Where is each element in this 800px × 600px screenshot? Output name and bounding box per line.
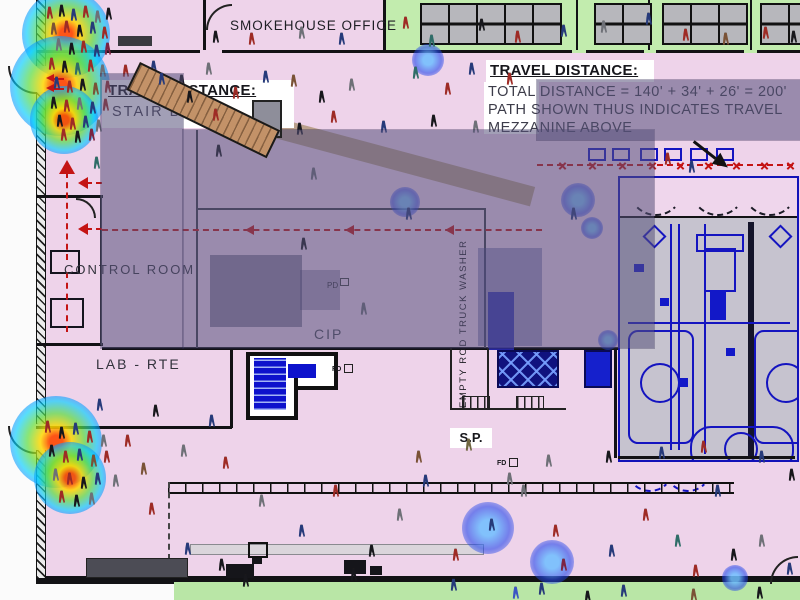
valve bbox=[678, 378, 688, 387]
red-x bbox=[786, 161, 795, 170]
equipment-box bbox=[50, 298, 84, 328]
person bbox=[758, 532, 765, 547]
table-desk bbox=[622, 3, 652, 45]
sprinkler-box bbox=[640, 148, 658, 161]
door-gap bbox=[200, 50, 222, 53]
pd-box bbox=[340, 278, 349, 286]
fd-label: FD bbox=[332, 366, 341, 373]
person bbox=[290, 72, 297, 87]
left-margin bbox=[0, 0, 36, 600]
pipe bbox=[678, 224, 680, 450]
person bbox=[50, 94, 57, 109]
arrow-head bbox=[712, 153, 732, 173]
pd-label: PD bbox=[327, 281, 338, 290]
stair-layer bbox=[0, 0, 800, 600]
vessel-circle bbox=[640, 363, 680, 403]
horizontal-vessel bbox=[690, 426, 794, 462]
control-room-label: CONTROL ROOM bbox=[64, 262, 195, 277]
person bbox=[512, 584, 519, 599]
person bbox=[605, 448, 612, 463]
t-room-equipment-arm bbox=[288, 364, 316, 378]
floor-equipment bbox=[226, 564, 254, 578]
person bbox=[89, 99, 96, 114]
travel-note-right-title: TRAVEL DISTANCE: bbox=[490, 62, 638, 79]
red-x bbox=[618, 161, 627, 170]
door-swing-arc bbox=[628, 160, 684, 216]
person bbox=[82, 113, 89, 128]
travel-note-right-titlebox bbox=[486, 60, 654, 82]
person bbox=[450, 576, 457, 591]
egress-dash bbox=[86, 228, 102, 230]
person bbox=[298, 522, 305, 537]
person bbox=[76, 22, 83, 37]
egress-arrow-left bbox=[340, 225, 354, 235]
exit-door-arc-top bbox=[8, 66, 36, 94]
conveyor-line-2 bbox=[190, 544, 484, 555]
machinery-room bbox=[618, 176, 799, 462]
person bbox=[348, 76, 355, 91]
person bbox=[70, 6, 77, 21]
person bbox=[105, 5, 112, 20]
table-desk bbox=[448, 3, 478, 45]
exit-door-arc-bottom bbox=[8, 426, 36, 454]
person bbox=[112, 472, 119, 487]
person bbox=[570, 205, 577, 220]
egress-arrow-left bbox=[72, 177, 88, 189]
blob-rainbow bbox=[22, 0, 110, 78]
person bbox=[53, 74, 60, 89]
table-desk bbox=[420, 3, 450, 45]
person bbox=[330, 108, 337, 123]
person bbox=[205, 60, 212, 75]
sprinkler-box bbox=[664, 148, 682, 161]
person bbox=[93, 154, 100, 169]
person bbox=[63, 18, 70, 33]
person bbox=[140, 460, 147, 475]
egress-path-vertical bbox=[66, 172, 68, 260]
machinery-floor bbox=[620, 216, 797, 460]
person bbox=[80, 38, 87, 53]
dim-overlay-layer bbox=[0, 0, 800, 600]
person bbox=[552, 522, 559, 537]
person bbox=[152, 402, 159, 417]
person bbox=[76, 95, 83, 110]
sprinkler-box bbox=[612, 148, 630, 161]
table-desk bbox=[760, 3, 790, 45]
valve bbox=[726, 348, 735, 356]
person bbox=[66, 78, 73, 93]
ladder-symbol bbox=[462, 396, 490, 410]
t-room-top bbox=[246, 352, 338, 390]
pipe bbox=[670, 224, 672, 450]
valve-block bbox=[704, 248, 736, 292]
person bbox=[488, 516, 495, 531]
person bbox=[478, 16, 485, 31]
person bbox=[730, 546, 737, 561]
fd-box bbox=[344, 364, 353, 373]
person bbox=[258, 492, 265, 507]
person bbox=[560, 22, 567, 37]
machinery-vestibule bbox=[620, 178, 797, 216]
wall bbox=[450, 408, 566, 410]
vessel bbox=[754, 330, 799, 444]
floor-equipment bbox=[252, 556, 262, 564]
person bbox=[444, 80, 451, 95]
wall bbox=[230, 348, 233, 428]
person bbox=[560, 556, 567, 571]
egress-arrow-left bbox=[42, 84, 54, 92]
person bbox=[74, 128, 81, 143]
person bbox=[44, 418, 51, 433]
table-desk bbox=[662, 3, 692, 45]
door-arc bbox=[76, 198, 96, 218]
wall bbox=[36, 426, 232, 429]
valve-block bbox=[710, 290, 726, 320]
person bbox=[76, 446, 83, 461]
person bbox=[82, 3, 89, 18]
person bbox=[762, 24, 769, 39]
person bbox=[48, 442, 55, 457]
egress-arrow-left bbox=[72, 223, 88, 235]
egress-path-right bbox=[537, 164, 793, 166]
person bbox=[402, 14, 409, 29]
person bbox=[600, 18, 607, 33]
floor-plan-slide: TRAVEL DISTANCE: STAIR B EXIT TRAVEL DIS… bbox=[0, 0, 800, 600]
person bbox=[788, 466, 795, 481]
person bbox=[92, 80, 99, 95]
person bbox=[415, 448, 422, 463]
blue-equipment-box bbox=[584, 350, 612, 388]
person bbox=[72, 420, 79, 435]
sp-label: S.P. bbox=[450, 428, 492, 448]
sprinkler-box bbox=[588, 148, 606, 161]
door-arc bbox=[770, 556, 798, 584]
blob-blue bbox=[598, 330, 618, 350]
person bbox=[122, 62, 129, 77]
plan-base-layer bbox=[0, 0, 800, 600]
wall bbox=[750, 0, 752, 50]
wall bbox=[620, 216, 797, 218]
valve-diamond bbox=[642, 224, 666, 248]
dim-overlay-left bbox=[101, 74, 183, 348]
dark-column bbox=[748, 222, 754, 458]
person bbox=[79, 76, 86, 91]
fd-label: FD bbox=[497, 460, 506, 467]
stair-landing bbox=[252, 100, 282, 138]
equipment-band bbox=[86, 558, 188, 578]
person bbox=[700, 438, 707, 453]
left-exterior-wall bbox=[36, 0, 46, 578]
wall bbox=[203, 0, 206, 50]
person bbox=[102, 96, 109, 111]
person bbox=[338, 30, 345, 45]
person bbox=[296, 120, 303, 135]
person bbox=[232, 84, 239, 99]
person bbox=[405, 205, 412, 220]
person bbox=[212, 106, 219, 121]
floor-equipment bbox=[248, 542, 268, 558]
person bbox=[368, 542, 375, 557]
door-gap bbox=[744, 50, 757, 53]
egress-arrow-up bbox=[59, 152, 75, 174]
table-desk bbox=[476, 3, 506, 45]
person bbox=[178, 72, 185, 87]
blob-blue bbox=[412, 44, 444, 76]
person bbox=[48, 55, 55, 70]
person bbox=[350, 566, 357, 581]
pipe bbox=[704, 224, 706, 454]
person bbox=[222, 454, 229, 469]
blob-blue bbox=[722, 565, 748, 591]
table-desk bbox=[504, 3, 534, 45]
cip-label: CIP bbox=[314, 326, 343, 342]
ladder-symbol bbox=[516, 396, 544, 410]
person bbox=[148, 500, 155, 515]
person bbox=[88, 126, 95, 141]
person bbox=[396, 506, 403, 521]
person bbox=[298, 24, 305, 39]
egress-dash bbox=[86, 182, 102, 184]
wall bbox=[36, 343, 103, 346]
empty-rod-washer-label: EMPTY ROD TRUCK WASHER bbox=[458, 288, 469, 408]
person bbox=[62, 448, 69, 463]
person bbox=[63, 97, 70, 112]
exit-door-gap-bottom bbox=[33, 424, 47, 450]
person bbox=[758, 448, 765, 463]
t-room-equipment bbox=[254, 358, 286, 410]
person bbox=[184, 540, 191, 555]
table-desk bbox=[690, 3, 720, 45]
person bbox=[96, 396, 103, 411]
person bbox=[722, 30, 729, 45]
person bbox=[60, 126, 67, 141]
person bbox=[94, 8, 101, 23]
stair-b bbox=[126, 62, 280, 158]
person bbox=[89, 19, 96, 34]
blob-rainbow bbox=[34, 442, 106, 514]
table-desk bbox=[718, 3, 748, 45]
wall bbox=[487, 348, 489, 410]
wall bbox=[100, 195, 102, 345]
person bbox=[472, 118, 479, 133]
valve-diamond bbox=[768, 224, 792, 248]
travel-note-right-line3: MEZZANINE ABOVE bbox=[488, 120, 632, 136]
travel-note-left-box bbox=[102, 80, 294, 128]
person bbox=[608, 542, 615, 557]
table-desk bbox=[532, 3, 562, 45]
red-x bbox=[704, 161, 713, 170]
fd-box bbox=[509, 458, 518, 467]
conveyor-drop bbox=[168, 482, 170, 560]
sprinkler-box bbox=[690, 148, 708, 161]
travel-note-right-line2: PATH SHOWN THUS INDICATES TRAVEL bbox=[488, 102, 783, 118]
person bbox=[218, 556, 225, 571]
person bbox=[300, 235, 307, 250]
floor-equipment bbox=[370, 566, 382, 575]
person bbox=[332, 482, 339, 497]
person bbox=[262, 68, 269, 83]
travel-note-left-line: STAIR B EXIT bbox=[112, 104, 228, 120]
truck-washer-equipment bbox=[497, 350, 559, 388]
blob-rainbow bbox=[10, 396, 102, 488]
blob-blue bbox=[530, 540, 574, 584]
person bbox=[690, 586, 697, 600]
person bbox=[664, 150, 671, 165]
wall bbox=[618, 456, 795, 459]
blob-blue bbox=[390, 187, 420, 217]
person bbox=[100, 432, 107, 447]
person bbox=[104, 78, 111, 93]
top-wall bbox=[36, 50, 800, 53]
person bbox=[95, 117, 102, 132]
equipment-dim bbox=[478, 248, 542, 346]
person bbox=[61, 58, 68, 73]
person bbox=[674, 532, 681, 547]
person bbox=[422, 472, 429, 487]
egress-arrow-left bbox=[240, 225, 254, 235]
equipment-box bbox=[50, 250, 80, 274]
person bbox=[688, 158, 695, 173]
person bbox=[310, 165, 317, 180]
wall bbox=[196, 208, 486, 210]
person bbox=[103, 448, 110, 463]
conveyor-line bbox=[168, 482, 734, 494]
wall bbox=[484, 210, 486, 348]
person bbox=[215, 142, 222, 157]
person bbox=[66, 470, 73, 485]
person bbox=[58, 424, 65, 439]
mezzanine-ramp-dim bbox=[250, 112, 535, 206]
person bbox=[786, 560, 793, 575]
person bbox=[56, 112, 63, 127]
wall bbox=[383, 0, 386, 52]
lab-rte-label: LAB - RTE bbox=[96, 356, 181, 372]
person bbox=[93, 42, 100, 57]
person bbox=[124, 432, 131, 447]
person bbox=[692, 562, 699, 577]
red-x bbox=[558, 161, 567, 170]
person bbox=[538, 580, 545, 595]
table-desk bbox=[594, 3, 624, 45]
egress-dash bbox=[52, 88, 64, 90]
person bbox=[50, 20, 57, 35]
sprinkler-box bbox=[716, 148, 734, 161]
person bbox=[430, 112, 437, 127]
person bbox=[80, 474, 87, 489]
person bbox=[104, 40, 111, 55]
blue-tower-dim bbox=[488, 292, 514, 350]
person bbox=[158, 70, 165, 85]
door-gap bbox=[572, 50, 586, 53]
person bbox=[87, 57, 94, 72]
valve bbox=[634, 264, 644, 272]
travel-path-arrow bbox=[690, 135, 733, 173]
person bbox=[514, 28, 521, 43]
door-swing-arc bbox=[690, 160, 746, 216]
person bbox=[52, 466, 59, 481]
red-x bbox=[732, 161, 741, 170]
dim-overlay-topright bbox=[537, 80, 800, 140]
person bbox=[58, 488, 65, 503]
blue-door-arc bbox=[664, 444, 712, 492]
door-gap bbox=[644, 50, 656, 53]
blob-rainbow bbox=[10, 36, 110, 136]
person bbox=[68, 40, 75, 55]
blob-blue bbox=[212, 99, 238, 125]
blob-blue bbox=[581, 217, 603, 239]
person bbox=[73, 492, 80, 507]
person bbox=[714, 482, 721, 497]
person bbox=[212, 28, 219, 43]
annotation-layer: TRAVEL DISTANCE: STAIR B EXIT TRAVEL DIS… bbox=[0, 0, 800, 600]
person bbox=[428, 32, 435, 47]
person bbox=[682, 26, 689, 41]
person bbox=[180, 442, 187, 457]
equipment-dim bbox=[210, 255, 302, 327]
person bbox=[465, 436, 472, 451]
arrow-shaft bbox=[693, 140, 717, 160]
red-x bbox=[588, 161, 597, 170]
person bbox=[360, 300, 367, 315]
t-room-leg bbox=[246, 378, 298, 420]
wall bbox=[614, 348, 617, 458]
bottom-wall bbox=[36, 576, 800, 584]
vessel-circle bbox=[724, 432, 758, 462]
table-desk bbox=[788, 3, 800, 45]
person bbox=[620, 582, 627, 597]
person bbox=[46, 4, 53, 19]
person bbox=[94, 470, 101, 485]
egress-arrow-left bbox=[42, 74, 54, 82]
person bbox=[150, 58, 157, 73]
person bbox=[86, 428, 93, 443]
person bbox=[74, 60, 81, 75]
person bbox=[242, 572, 249, 587]
person bbox=[658, 444, 665, 459]
vessel-circle bbox=[766, 363, 799, 403]
equipment-dim bbox=[300, 270, 340, 310]
floor-equipment bbox=[344, 560, 366, 574]
person bbox=[90, 452, 97, 467]
travel-note-right-line1: TOTAL DISTANCE = 140' + 34' + 26' = 200' bbox=[488, 84, 787, 100]
wall bbox=[196, 130, 198, 348]
red-x bbox=[648, 161, 657, 170]
wall bbox=[450, 348, 452, 410]
person bbox=[452, 546, 459, 561]
wall bbox=[576, 0, 578, 50]
green-room-floor bbox=[385, 0, 800, 52]
person bbox=[584, 588, 591, 600]
person bbox=[380, 118, 387, 133]
exit-door-gap-top bbox=[33, 66, 47, 92]
desk bbox=[118, 36, 152, 46]
person bbox=[69, 115, 76, 130]
person bbox=[756, 584, 763, 599]
person bbox=[248, 30, 255, 45]
person bbox=[790, 28, 797, 43]
person bbox=[208, 412, 215, 427]
person bbox=[101, 24, 108, 39]
main-floor bbox=[36, 0, 800, 578]
person bbox=[58, 2, 65, 17]
blob-rainbow bbox=[30, 86, 98, 154]
person bbox=[642, 506, 649, 521]
egress-dash bbox=[52, 78, 64, 80]
person bbox=[318, 88, 325, 103]
person bbox=[506, 70, 513, 85]
person bbox=[186, 88, 193, 103]
blue-door-arc bbox=[626, 444, 674, 492]
